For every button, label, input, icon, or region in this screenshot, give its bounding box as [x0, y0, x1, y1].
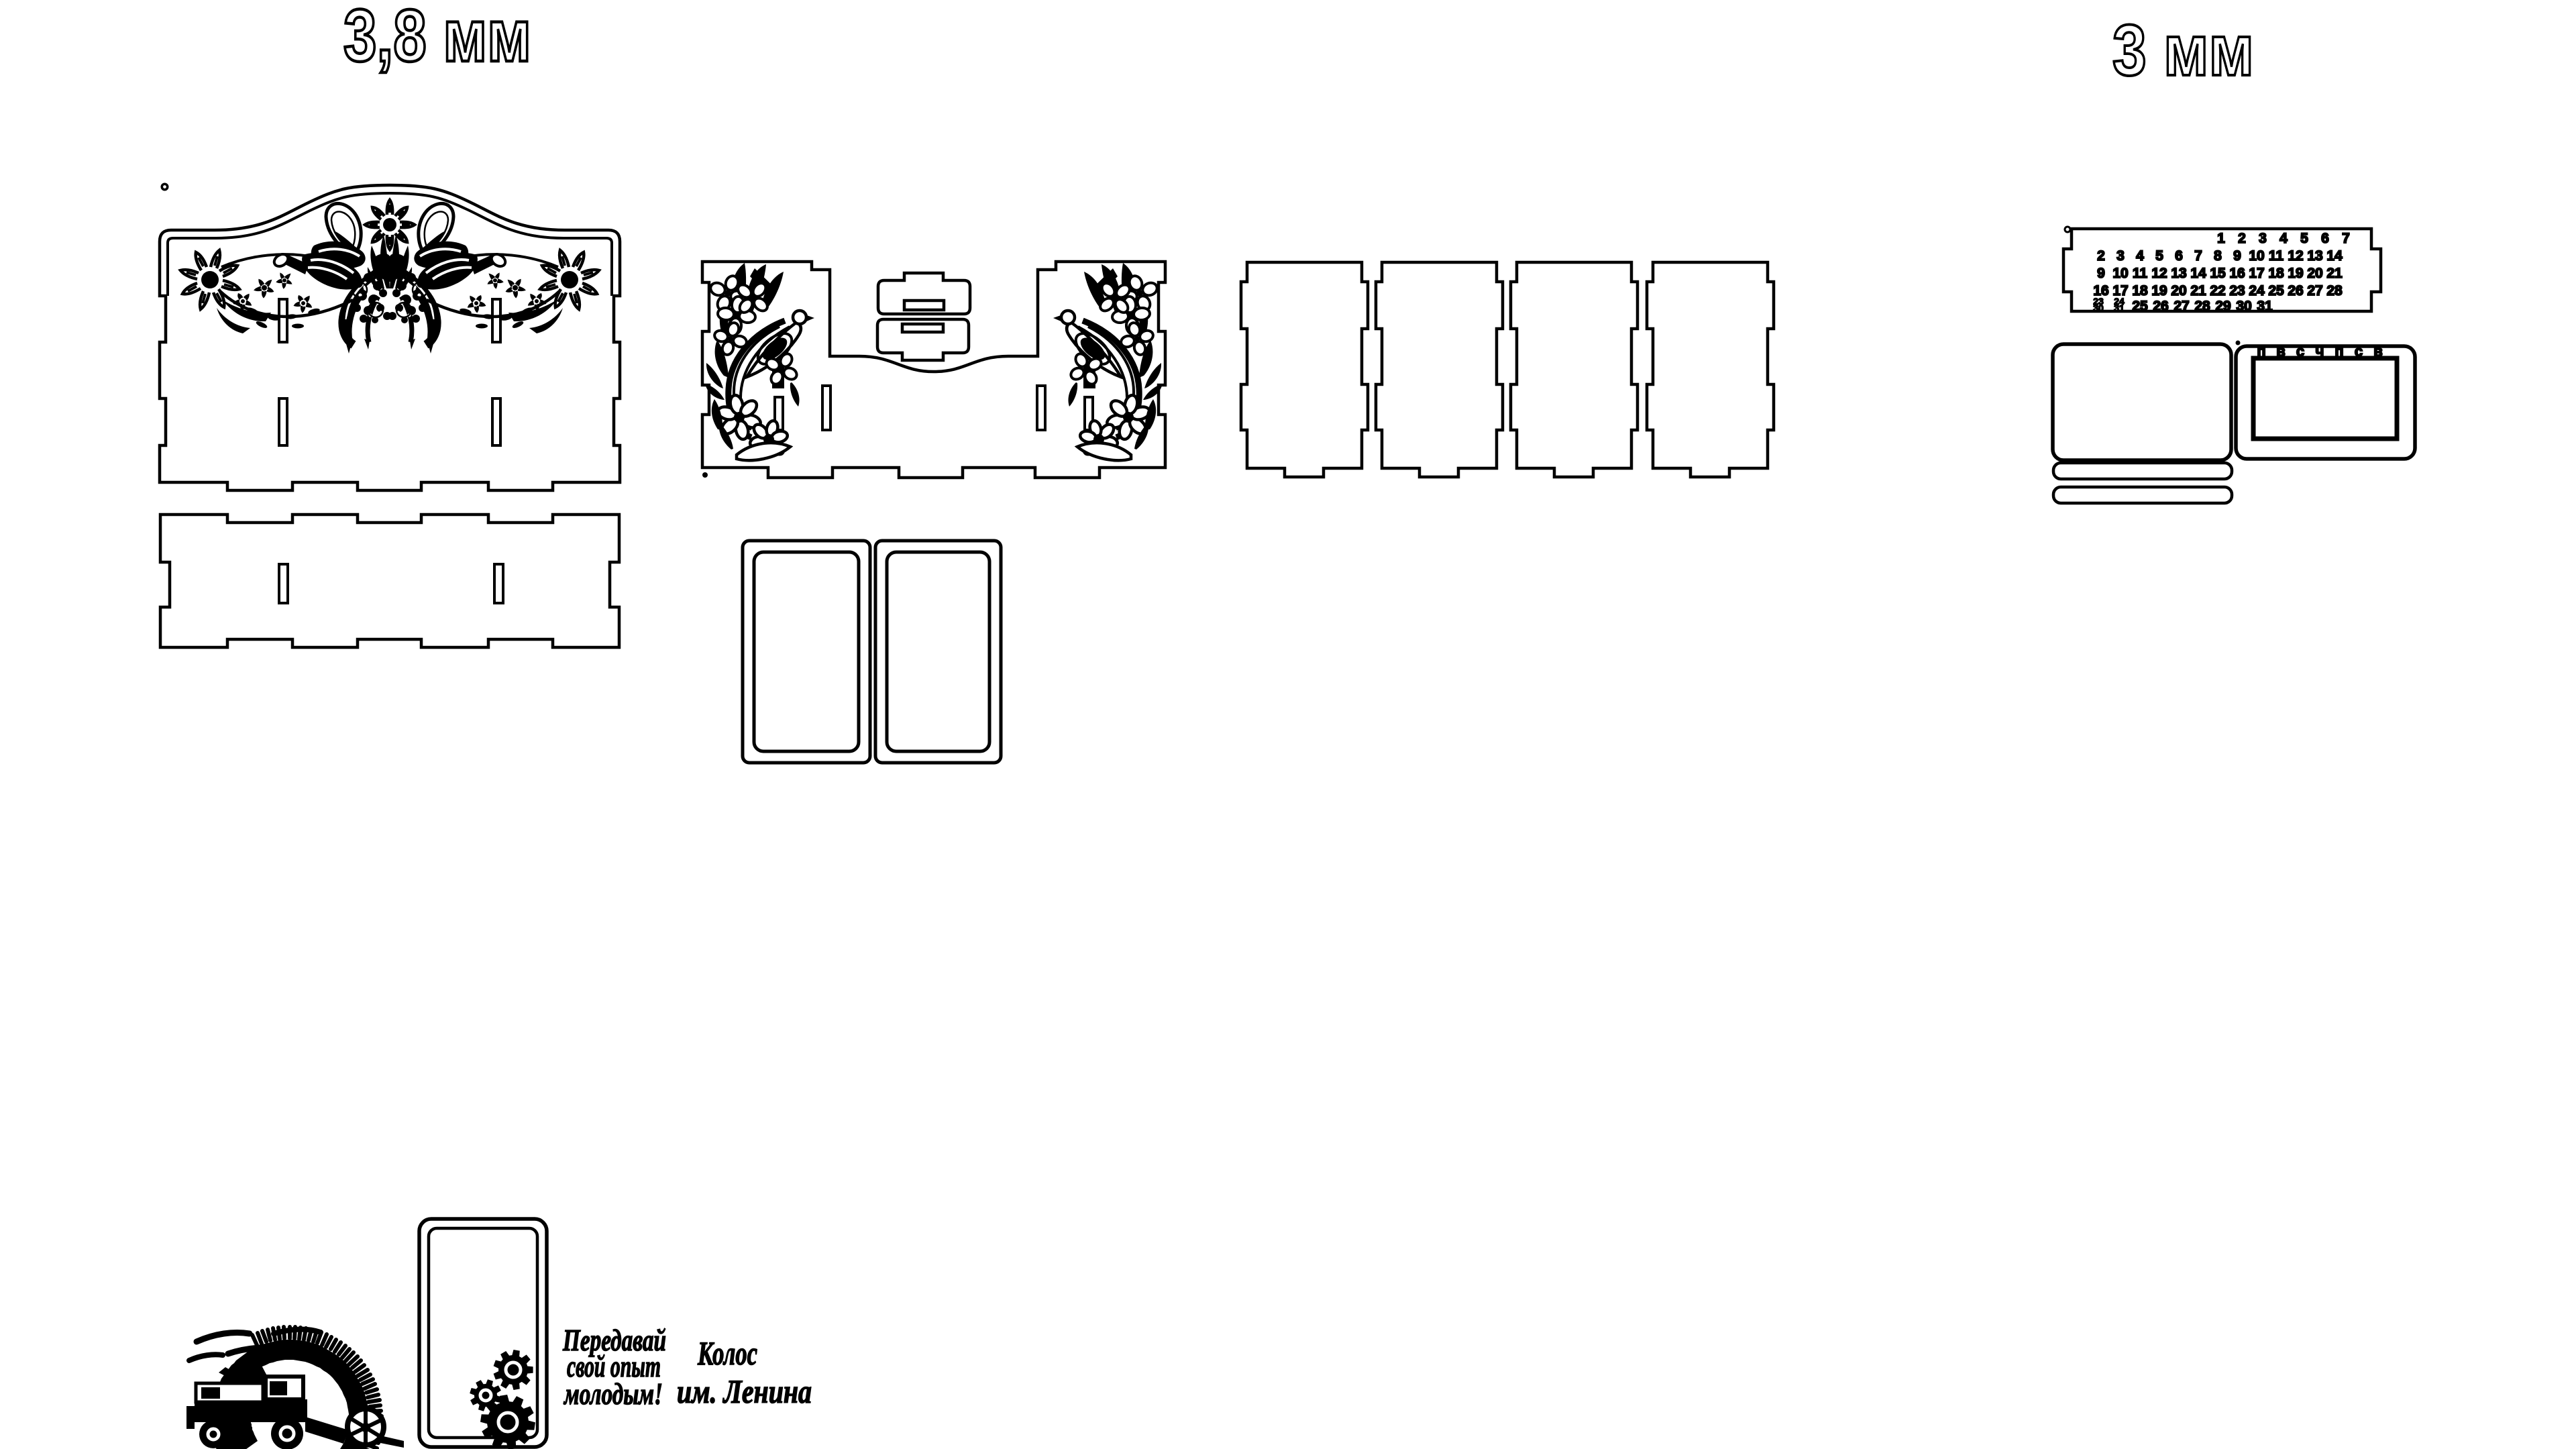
svg-text:1: 1 — [2217, 231, 2225, 246]
svg-text:с: с — [2355, 343, 2363, 360]
svg-text:25: 25 — [2132, 299, 2148, 314]
svg-text:21: 21 — [2190, 283, 2206, 299]
svg-text:5: 5 — [2155, 248, 2163, 264]
svg-text:15: 15 — [2210, 266, 2226, 281]
svg-text:7: 7 — [2194, 248, 2202, 264]
svg-text:27: 27 — [2173, 299, 2189, 314]
svg-text:31: 31 — [2257, 299, 2273, 314]
svg-text:16: 16 — [2229, 266, 2245, 281]
svg-text:11: 11 — [2133, 266, 2148, 281]
svg-text:в: в — [2276, 343, 2286, 360]
svg-text:11: 11 — [2269, 248, 2284, 264]
svg-text:18: 18 — [2132, 283, 2148, 299]
svg-text:2: 2 — [2238, 231, 2246, 246]
svg-text:8: 8 — [2214, 248, 2222, 264]
svg-text:14: 14 — [2326, 248, 2343, 264]
svg-text:4: 4 — [2136, 248, 2144, 264]
svg-text:4: 4 — [2279, 231, 2288, 246]
svg-text:в: в — [2373, 343, 2383, 360]
svg-text:30: 30 — [2093, 303, 2104, 313]
svg-text:10: 10 — [2112, 266, 2128, 281]
svg-text:9: 9 — [2097, 266, 2105, 281]
svg-text:п: п — [2334, 343, 2343, 360]
svg-text:14: 14 — [2190, 266, 2206, 281]
svg-text:29: 29 — [2215, 299, 2231, 314]
svg-text:12: 12 — [2288, 248, 2303, 264]
svg-text:28: 28 — [2326, 283, 2343, 299]
svg-text:им. Ленина: им. Ленина — [677, 1373, 812, 1410]
svg-text:19: 19 — [2151, 283, 2167, 299]
svg-text:20: 20 — [2171, 283, 2186, 299]
svg-text:18: 18 — [2268, 266, 2284, 281]
svg-text:2: 2 — [2097, 248, 2105, 264]
svg-text:3: 3 — [2259, 231, 2267, 246]
svg-text:10: 10 — [2249, 248, 2264, 264]
svg-text:3: 3 — [2116, 248, 2125, 264]
svg-text:20: 20 — [2307, 266, 2322, 281]
svg-text:5: 5 — [2300, 231, 2308, 246]
svg-text:30: 30 — [2236, 299, 2251, 314]
svg-text:17: 17 — [2249, 266, 2264, 281]
svg-text:19: 19 — [2288, 266, 2303, 281]
svg-text:21: 21 — [2326, 266, 2343, 281]
svg-text:31: 31 — [2114, 303, 2125, 313]
svg-text:п: п — [2257, 343, 2265, 360]
svg-text:9: 9 — [2233, 248, 2241, 264]
svg-text:12: 12 — [2151, 266, 2167, 281]
svg-text:7: 7 — [2342, 231, 2350, 246]
svg-text:24: 24 — [2249, 283, 2265, 299]
svg-text:с: с — [2296, 343, 2304, 360]
svg-text:молодым!: молодым! — [563, 1377, 663, 1411]
svg-text:25: 25 — [2268, 283, 2284, 299]
svg-text:3,8 мм: 3,8 мм — [343, 0, 531, 77]
svg-text:Колос: Колос — [697, 1334, 757, 1372]
svg-text:3 мм: 3 мм — [2112, 9, 2254, 91]
svg-text:23: 23 — [2229, 283, 2245, 299]
svg-text:13: 13 — [2307, 248, 2322, 264]
svg-text:26: 26 — [2153, 299, 2168, 314]
svg-text:13: 13 — [2171, 266, 2186, 281]
svg-text:6: 6 — [2321, 231, 2329, 246]
svg-text:26: 26 — [2288, 283, 2303, 299]
svg-text:27: 27 — [2307, 283, 2322, 299]
svg-text:ч: ч — [2316, 343, 2324, 360]
svg-text:22: 22 — [2210, 283, 2225, 299]
svg-text:6: 6 — [2175, 248, 2183, 264]
svg-text:28: 28 — [2194, 299, 2210, 314]
